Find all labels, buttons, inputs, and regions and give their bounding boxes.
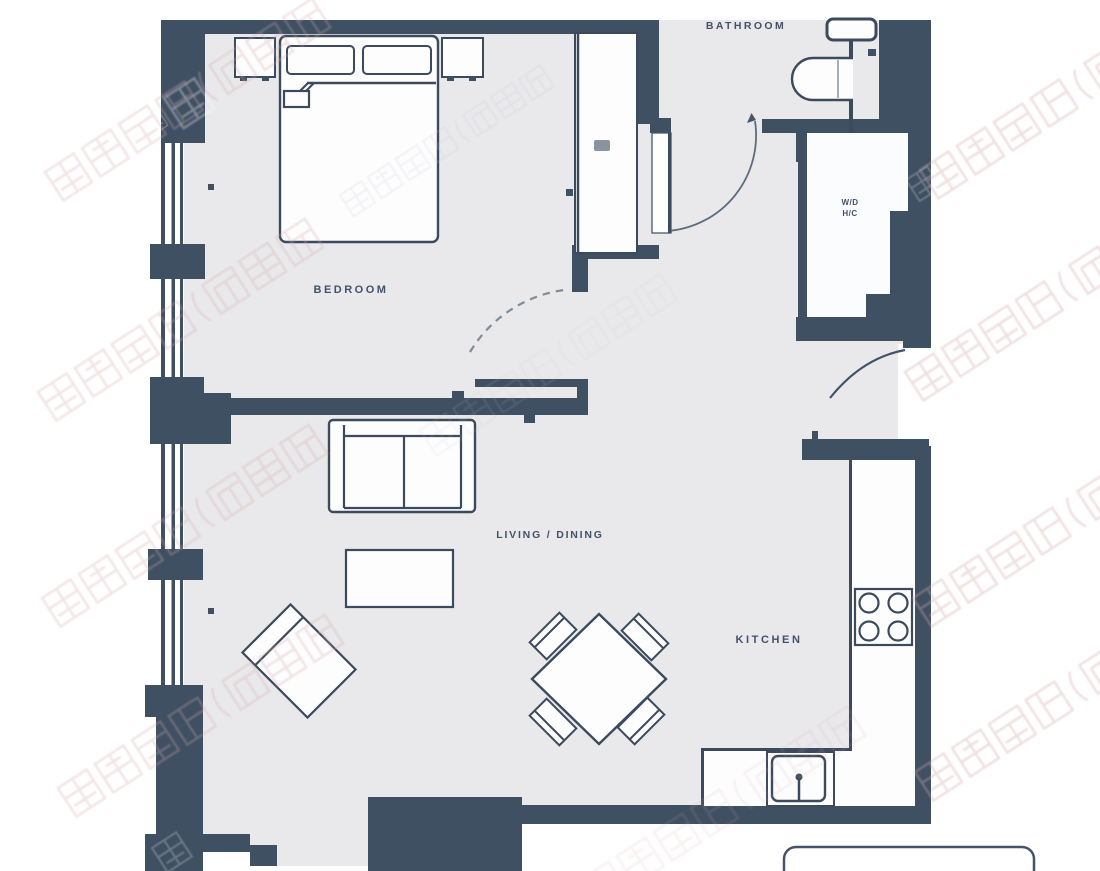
svg-text:W/D: W/D <box>841 198 858 207</box>
svg-text:BATHROOM: BATHROOM <box>706 20 786 32</box>
svg-text:BEDROOM: BEDROOM <box>314 284 389 296</box>
svg-text:H/C: H/C <box>842 209 857 218</box>
svg-text:LIVING / DINING: LIVING / DINING <box>496 529 604 541</box>
svg-text:KITCHEN: KITCHEN <box>735 634 802 646</box>
